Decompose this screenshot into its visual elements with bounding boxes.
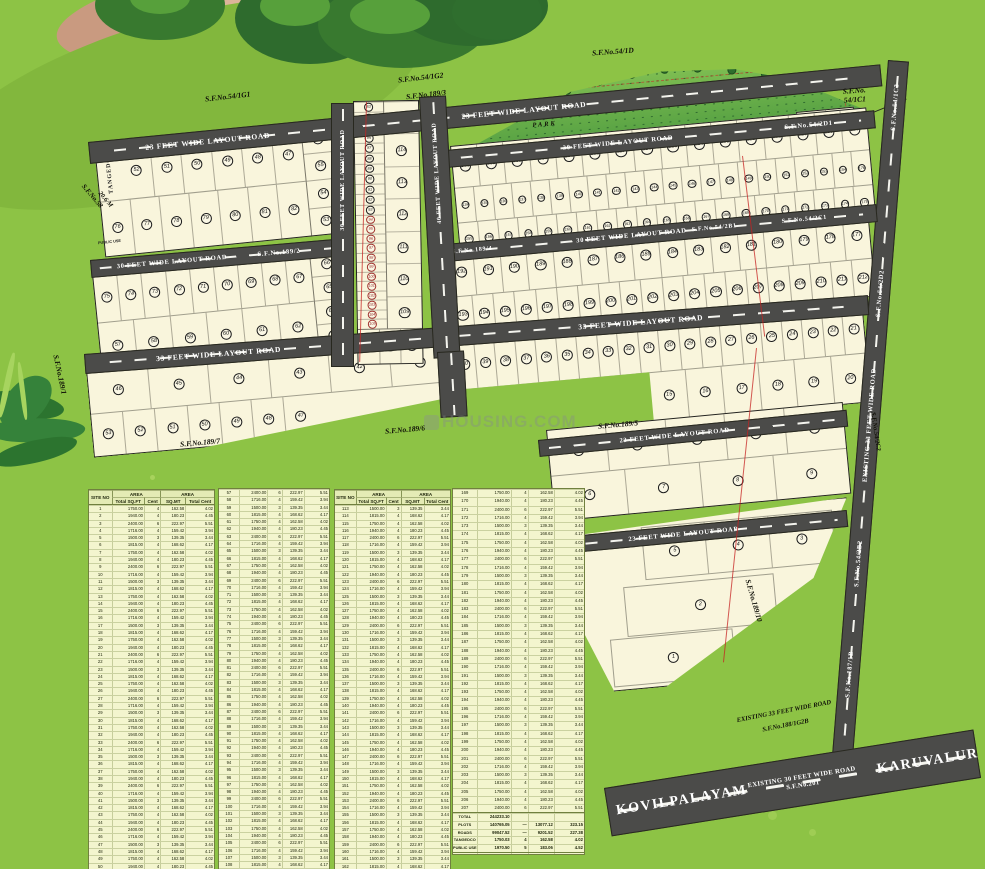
- table-row: 1571750.004162.584.02: [335, 826, 450, 833]
- table-row: 32400.006222.975.51: [89, 520, 214, 527]
- table-row: 1621815.004168.624.17: [335, 863, 450, 869]
- table-row: 101716.004159.423.94: [89, 571, 214, 578]
- table-row: 1532400.006222.975.51: [335, 797, 450, 804]
- table-row: 1971500.003139.353.44: [453, 721, 584, 729]
- table-row: 1841716.004159.423.94: [453, 613, 584, 621]
- plot-number: 60: [220, 328, 232, 340]
- plot-number: 105: [368, 320, 377, 329]
- table-row: 1931750.004162.584.02: [453, 688, 584, 696]
- plot-number: 183: [693, 244, 705, 256]
- table-row: 1381815.004168.624.17: [335, 687, 450, 694]
- header-area: AREA: [401, 490, 450, 497]
- table-row: 1501815.004168.624.17: [335, 775, 450, 782]
- table-row: 1941940.004180.234.45: [453, 696, 584, 704]
- plot-number: 47: [282, 149, 294, 161]
- plot-number: 49: [231, 416, 243, 428]
- table-row: 1881940.004180.234.45: [453, 647, 584, 655]
- road-30ft-vertical: 30 FEET WIDE LAYOUT ROAD: [331, 103, 354, 367]
- plot-number: 87: [365, 144, 374, 153]
- plot-number: 150: [763, 172, 772, 181]
- table-row: 301815.004168.624.17: [89, 717, 214, 724]
- table-row: 1871750.004162.584.02: [453, 638, 584, 646]
- table-row: 1081815.004168.624.17: [219, 861, 329, 868]
- table-row: 71750.004162.584.02: [89, 549, 214, 556]
- plot-number: 147: [706, 177, 715, 186]
- plot-cell: 19: [793, 356, 834, 408]
- table-row: 651500.003139.353.44: [219, 547, 329, 554]
- plot-cell: 48: [250, 397, 286, 442]
- table-row: 1791500.003139.353.44: [453, 572, 584, 580]
- plot-number: 211: [836, 274, 848, 286]
- table-row: 281716.004159.423.94: [89, 702, 214, 709]
- plot-number: 148: [725, 175, 734, 184]
- table-row: 1061716.004159.423.94: [219, 847, 329, 854]
- table-row: 2061940.004180.234.45: [453, 796, 584, 804]
- plot-cell: 83: [354, 101, 383, 112]
- table-row: 1832400.006222.975.51: [453, 605, 584, 613]
- plot-number: 144: [650, 182, 659, 191]
- watermark: HOUSING.COM: [424, 412, 577, 432]
- table-row: 1741815.004168.624.17: [453, 530, 584, 538]
- table-row: 2021716.004159.423.94: [453, 763, 584, 771]
- table-row: 1001716.004159.423.94: [219, 803, 329, 810]
- table-row: 1391750.004162.584.02: [335, 695, 450, 702]
- road-dash: [450, 353, 455, 414]
- plot-number: 192: [456, 266, 468, 278]
- road-label: 33 FEET WIDE LAYOUT ROAD: [578, 313, 704, 331]
- sf-label: S.F.No.189/1: [51, 354, 68, 395]
- table-row: 791750.004162.584.02: [219, 650, 329, 657]
- header-sub: Total SQ.FT: [356, 497, 386, 504]
- table-row: 1041940.004180.234.45: [219, 832, 329, 839]
- plot-number: 179: [798, 235, 810, 247]
- table-row: 1241716.004159.423.94: [335, 585, 450, 592]
- header-area: AREA: [112, 490, 161, 497]
- table-row: 491750.004162.584.02: [89, 855, 214, 862]
- plot-number: 1: [668, 652, 680, 664]
- table-row: 1201815.004168.624.17: [335, 556, 450, 563]
- road-label: S.F.No.189/2: [257, 248, 300, 259]
- summary-row: PUBLIC USE1970.505183.064.52: [453, 844, 584, 852]
- plot-number: 182: [719, 242, 731, 254]
- plot-cell: 52: [122, 408, 158, 453]
- header-site-no: SITE NO: [89, 490, 112, 504]
- plot-number: 206: [731, 284, 743, 296]
- plot-number: 100: [367, 273, 376, 282]
- table-row: 81940.004180.234.45: [89, 556, 214, 563]
- table-row: 1151750.004162.584.02: [335, 520, 450, 527]
- table-row: 371750.004162.584.02: [89, 768, 214, 775]
- plot-number: 210: [815, 276, 827, 288]
- plot-number: 80: [229, 210, 241, 222]
- table-row: 2041815.004168.624.17: [453, 779, 584, 787]
- plot-number: 104: [368, 311, 377, 320]
- plot-cell: 49: [218, 400, 254, 445]
- sf-label: S.F.No.188/1G2B: [762, 718, 810, 734]
- plot-number: 29: [684, 338, 696, 350]
- sf-label: S.F.No. 54/1C1: [842, 85, 866, 105]
- plot-number: 15: [663, 389, 675, 401]
- plot-number: 49: [222, 155, 234, 167]
- table-row: 1341940.004180.234.45: [335, 658, 450, 665]
- header-area: AREA: [356, 490, 401, 497]
- plot-number: 74: [125, 289, 137, 301]
- plot-number: 77: [141, 219, 153, 231]
- table-header: SITE NO AREA AREA Total SQ.FT Cent SQ.MT…: [89, 490, 214, 505]
- plot-number: 26: [746, 332, 758, 344]
- table-row: 1811750.004162.584.02: [453, 589, 584, 597]
- table-row: 911750.004162.584.02: [219, 737, 329, 744]
- plot-number: 141: [593, 188, 602, 197]
- plot-number: 23: [807, 327, 819, 339]
- table-row: 992400.006222.975.51: [219, 795, 329, 802]
- town-label-left: KOVILPALAYAM: [615, 782, 748, 819]
- plot-cell: 97: [356, 243, 385, 253]
- table-row: 591500.003139.353.44: [219, 504, 329, 511]
- plot-number: 204: [689, 288, 701, 300]
- plot-number: 139: [555, 191, 564, 200]
- plot-number: 92: [366, 195, 375, 204]
- plot-number: 190: [508, 262, 520, 274]
- plot-number: 145: [668, 181, 677, 190]
- plot-number: 177: [851, 230, 863, 242]
- plot-number: 21: [848, 323, 860, 335]
- plot-cell: 109: [387, 295, 422, 328]
- table-row: 1421716.004159.423.94: [335, 717, 450, 724]
- plot-number: 209: [794, 278, 806, 290]
- table-row: 601815.004168.624.17: [219, 511, 329, 518]
- table-row: 461716.004159.423.94: [89, 833, 214, 840]
- plot-number: 197: [541, 301, 553, 313]
- plot-number: 101: [367, 282, 376, 291]
- plot-number: 48: [252, 152, 264, 164]
- table-row: 812400.006222.975.51: [219, 664, 329, 671]
- table-row: 241815.004168.624.17: [89, 673, 214, 680]
- road-label: 33 FEET WIDE LAYOUT ROAD: [156, 345, 282, 363]
- plot-number: 16: [700, 386, 712, 398]
- plot-cell: 9: [772, 448, 850, 499]
- plot-number: 75: [101, 291, 113, 303]
- plot-number: 70: [221, 279, 233, 291]
- header-area: AREA: [160, 490, 214, 497]
- table-row: 781815.004168.624.17: [219, 642, 329, 649]
- table-row: 201940.004180.234.45: [89, 644, 214, 651]
- table-row: 1821940.004180.234.45: [453, 597, 584, 605]
- plot-cell: 103: [357, 300, 386, 310]
- table-row: 1191500.003139.353.44: [335, 549, 450, 556]
- table-row: 932400.006222.975.51: [219, 752, 329, 759]
- table-row: 761716.004159.423.94: [219, 628, 329, 635]
- table-row: 1211750.004162.584.02: [335, 563, 450, 570]
- plot-number: 91: [366, 185, 375, 194]
- table-row: 92400.006222.975.51: [89, 563, 214, 570]
- plot-number: 34: [582, 347, 594, 359]
- plot-number: 62: [292, 321, 304, 333]
- header-sub: Total SQ.FT: [112, 497, 145, 504]
- layout-plan-scene: TANGEDCO 525150494847 76777879808182 565…: [0, 0, 985, 869]
- plot-number: 98: [367, 254, 376, 263]
- table-row: 1011500.003139.353.44: [219, 810, 329, 817]
- plot-number: 135: [480, 198, 489, 207]
- table-row: 261940.004180.234.45: [89, 687, 214, 694]
- table-row: 251750.004162.584.02: [89, 680, 214, 687]
- table-row: 861940.004180.234.45: [219, 701, 329, 708]
- plot-number: 54: [317, 187, 329, 199]
- table-row: 11750.004162.584.02: [89, 505, 214, 512]
- table-row: 1892400.006222.975.51: [453, 655, 584, 663]
- table-row: 741940.004180.234.45: [219, 613, 329, 620]
- table-row: 2031500.003139.353.44: [453, 771, 584, 779]
- table-row: 801940.004180.234.45: [219, 657, 329, 664]
- plot-number: 196: [520, 303, 532, 315]
- table-row: 881716.004159.423.94: [219, 715, 329, 722]
- plot-number: 30: [664, 340, 676, 352]
- plot-number: 89: [365, 165, 374, 174]
- table-row: 1412400.006222.975.51: [335, 709, 450, 716]
- table-row: 1991750.004162.584.02: [453, 738, 584, 746]
- plot-number: 113: [397, 177, 408, 188]
- plot-number: 6: [584, 489, 596, 501]
- plot-number: 194: [478, 307, 490, 319]
- plot-number: 50: [199, 419, 211, 431]
- plot-number: 53: [103, 428, 115, 440]
- table-row: 1371500.003139.353.44: [335, 680, 450, 687]
- header-sub: SQ.MT: [401, 497, 424, 504]
- plot-number: 17: [736, 383, 748, 395]
- plot-number: 72: [173, 284, 185, 296]
- road-40ft-vertical: 40 FEET WIDE LAYOUT ROAD: [419, 95, 461, 358]
- sf-label-line2: 54/1C1: [843, 94, 867, 105]
- table-row: 291500.003139.353.44: [89, 709, 214, 716]
- table-row: 1271750.004162.584.02: [335, 607, 450, 614]
- plot-number: 110: [399, 274, 410, 285]
- plot-number: 39: [479, 356, 491, 368]
- table-row: 1712400.006222.975.51: [453, 506, 584, 514]
- plot-number: 32: [623, 343, 635, 355]
- table-row: 711500.003139.353.44: [219, 591, 329, 598]
- plot-number: 37: [520, 353, 532, 365]
- table-row: 1301716.004159.423.94: [335, 629, 450, 636]
- site-area-table-3: SITE NO AREA AREA Total SQ.FT Cent SQ.MT…: [334, 489, 451, 869]
- table-row: 1901716.004159.423.94: [453, 663, 584, 671]
- plot-number: 189: [535, 259, 547, 271]
- table-row: 1161940.004180.234.45: [335, 527, 450, 534]
- site-area-table-4: 1691750.004162.584.021701940.004180.234.…: [452, 488, 585, 855]
- plot-cell: 94: [356, 214, 385, 224]
- table-row: 1561815.004168.624.17: [335, 819, 450, 826]
- road-label: 30 FEET WIDE LAYOUT ROAD: [340, 130, 346, 231]
- plot-number: 153: [819, 167, 828, 176]
- table-row: 2012400.006222.975.51: [453, 755, 584, 763]
- site-area-table-1: SITE NO AREA AREA Total SQ.FT Cent SQ.MT…: [88, 489, 215, 869]
- table-header: SITE NO AREA AREA Total SQ.FT Cent SQ.MT…: [335, 490, 450, 505]
- table-row: 152400.006222.975.51: [89, 607, 214, 614]
- plot-cell: 15: [649, 370, 689, 422]
- plot-number: 48: [263, 413, 275, 425]
- table-row: 231500.003139.353.44: [89, 666, 214, 673]
- table-row: 1601716.004159.423.94: [335, 848, 450, 855]
- table-row: 1451750.004162.584.02: [335, 739, 450, 746]
- table-row: 441940.004180.234.45: [89, 819, 214, 826]
- table-row: 1911500.003139.353.44: [453, 672, 584, 680]
- table-row: 1441815.004168.624.17: [335, 731, 450, 738]
- table-row: 1691750.004162.584.02: [453, 489, 584, 497]
- table-row: 1321815.004168.624.17: [335, 644, 450, 651]
- table-row: 1961716.004159.423.94: [453, 713, 584, 721]
- plot-cell: 92: [356, 194, 385, 205]
- plot-number: 68: [269, 274, 281, 286]
- plot-number: 57: [112, 339, 124, 351]
- table-row: 1461940.004180.234.45: [335, 746, 450, 753]
- table-row: 671750.004162.584.02: [219, 562, 329, 569]
- tree-icon: [660, 64, 670, 74]
- plot-number: 187: [587, 254, 599, 266]
- table-row: 941716.004159.423.94: [219, 759, 329, 766]
- plot-number: 43: [293, 367, 305, 379]
- road-label: S.F.No.54/2B2: [853, 540, 864, 587]
- plot-number: 81: [259, 207, 271, 219]
- plot-number: 181: [745, 240, 757, 252]
- plot-number: 146: [687, 179, 696, 188]
- table-row: 1491500.003139.353.44: [335, 768, 450, 775]
- table-row: 1731500.003139.353.44: [453, 522, 584, 530]
- road-label: S.F.No.189/4: [452, 246, 493, 256]
- plot-number: 36: [541, 351, 553, 363]
- plot-number: 79: [200, 213, 212, 225]
- plot-number: 9: [806, 468, 818, 480]
- plot-number: 151: [782, 170, 791, 179]
- table-row: 821716.004159.423.94: [219, 671, 329, 678]
- plot-cell: 90: [355, 173, 384, 184]
- plot-cell: 114: [385, 133, 420, 166]
- table-row: 721815.004168.624.17: [219, 598, 329, 605]
- plot-number: 134: [461, 200, 470, 209]
- road-label: S.F.No.54/2C1: [782, 215, 828, 225]
- table-row: 452400.006222.975.51: [89, 826, 214, 833]
- table-row: 1952400.006222.975.51: [453, 705, 584, 713]
- table-row: 1232400.006222.975.51: [335, 578, 450, 585]
- table-row: 1031750.004162.584.02: [219, 825, 329, 832]
- table-row: 611750.004162.584.02: [219, 518, 329, 525]
- plot-number: 51: [167, 422, 179, 434]
- summary-row: TANGEDCO1750.034162.584.02: [453, 836, 584, 844]
- road-label: S.F.No.54/2D1: [784, 120, 833, 131]
- table-row: 311750.004162.584.02: [89, 724, 214, 731]
- table-row: 831500.003139.353.44: [219, 679, 329, 686]
- plot-number: 96: [367, 235, 376, 244]
- table-row: 891500.003139.353.44: [219, 723, 329, 730]
- plot-number: 212: [857, 272, 869, 284]
- table-row: 1981815.004168.624.17: [453, 730, 584, 738]
- table-row: 731750.004162.584.02: [219, 606, 329, 613]
- road-label: 40 FEET WIDE LAYOUT ROAD: [431, 122, 443, 223]
- table-row: 1921815.004168.624.17: [453, 680, 584, 688]
- table-row: 401716.004159.423.94: [89, 790, 214, 797]
- plot-number: 19: [808, 376, 820, 388]
- table-row: 1472400.006222.975.51: [335, 753, 450, 760]
- plot-cell: 16: [685, 366, 726, 418]
- table-row: 621940.004180.234.45: [219, 525, 329, 532]
- plot-number: 47: [295, 410, 307, 422]
- plot-number: 137: [517, 195, 526, 204]
- table-row: 771500.003139.353.44: [219, 635, 329, 642]
- plot-number: 180: [772, 237, 784, 249]
- summary-row: PLOTS140765.05—13077.12323.15: [453, 821, 584, 829]
- plot-number: 7: [658, 482, 670, 494]
- plot-number: 38: [500, 354, 512, 366]
- table-row: 1611500.003139.353.44: [335, 855, 450, 862]
- table-row: 1541716.004159.423.94: [335, 804, 450, 811]
- table-row: 111500.003139.353.44: [89, 578, 214, 585]
- table-row: 1361716.004159.423.94: [335, 673, 450, 680]
- plot-number: 138: [536, 193, 545, 202]
- plot-number: 205: [710, 286, 722, 298]
- plot-number: 55: [315, 160, 327, 172]
- table-row: 341716.004159.423.94: [89, 746, 214, 753]
- plot-number: 111: [398, 242, 409, 253]
- table-row: 661815.004168.624.17: [219, 555, 329, 562]
- table-row: 481815.004168.624.17: [89, 848, 214, 855]
- road-label: S.F.No.54/2D2: [874, 270, 885, 318]
- table-row: 981940.004180.234.45: [219, 788, 329, 795]
- plot-cell: 95: [356, 224, 385, 234]
- plot-number: 176: [857, 163, 866, 172]
- table-row: 2001940.004180.234.45: [453, 746, 584, 754]
- table-row: 1181716.004159.423.94: [335, 541, 450, 548]
- plot-number: 45: [173, 378, 185, 390]
- summary-row: ROADS99047.52—9201.52227.38: [453, 829, 584, 837]
- table-row: 1292400.006222.975.51: [335, 622, 450, 629]
- table-row: 1592400.006222.975.51: [335, 841, 450, 848]
- table-row: 2051750.004162.584.02: [453, 788, 584, 796]
- table-row: 872400.006222.975.51: [219, 708, 329, 715]
- road-label-center: EXISTING 30 FEET WIDE ROAD S.F.No.201: [747, 765, 857, 798]
- tree-icon: [627, 69, 637, 79]
- summary-row: TOTAL244233.10: [453, 813, 584, 821]
- table-row: 121815.004168.624.17: [89, 585, 214, 592]
- plot-cell: 176: [850, 150, 872, 185]
- plot-number: 35: [561, 349, 573, 361]
- table-row: 1052400.006222.975.51: [219, 839, 329, 846]
- table-row: 181815.004168.624.17: [89, 629, 214, 636]
- plot-number: 33: [602, 345, 614, 357]
- plot-cell: 53: [91, 411, 126, 456]
- plot-number: 5: [669, 545, 681, 557]
- plot-number: 69: [245, 277, 257, 289]
- plot-number: 195: [499, 305, 511, 317]
- plot-number: 109: [399, 307, 410, 318]
- table-row: 421815.004168.624.17: [89, 804, 214, 811]
- table-row: 1251500.003139.353.44: [335, 593, 450, 600]
- plot-number: 186: [614, 252, 626, 264]
- plot-number: 102: [368, 292, 377, 301]
- table-row: 632400.006222.975.51: [219, 533, 329, 540]
- header-sub: Total Cent: [424, 497, 450, 504]
- plot-number: 3: [796, 533, 808, 545]
- plot-number: 24: [786, 328, 798, 340]
- plot-number: 67: [293, 272, 305, 284]
- sf-label: S.F.No.189/6: [385, 423, 426, 435]
- table-row: 221716.004159.423.94: [89, 658, 214, 665]
- plot-number: 201: [626, 293, 638, 305]
- table-row: 1721716.004159.423.94: [453, 514, 584, 522]
- table-row: 701716.004159.423.94: [219, 584, 329, 591]
- plot-number: 90: [366, 175, 375, 184]
- plot-cell: 110: [387, 263, 422, 296]
- plot-number: 140: [574, 189, 583, 198]
- table-row: 1021815.004168.624.17: [219, 817, 329, 824]
- grass-speckles: [150, 475, 155, 480]
